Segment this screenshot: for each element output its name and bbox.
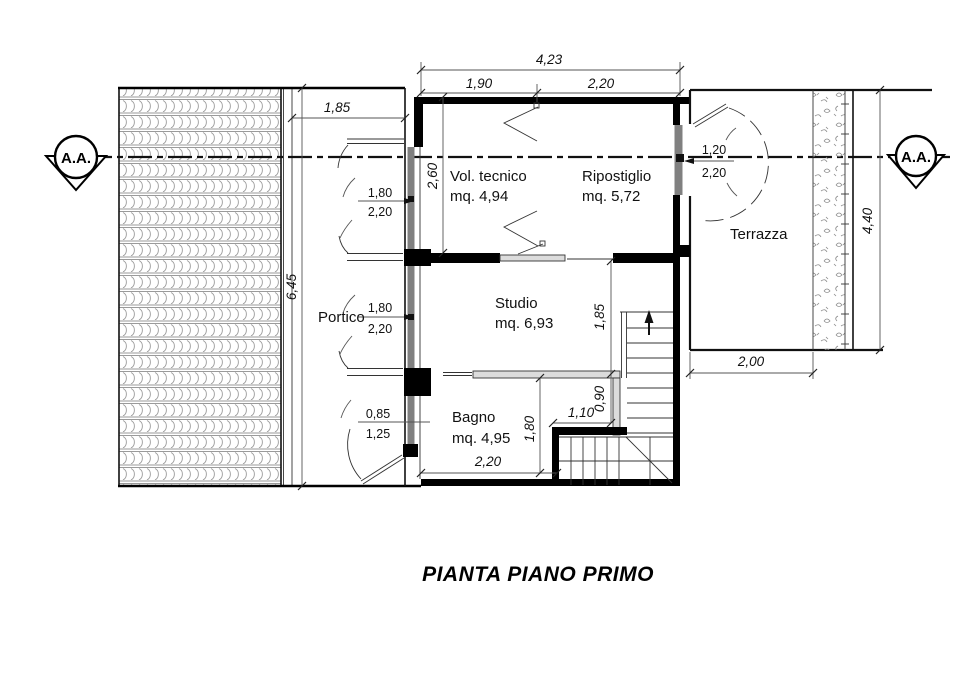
room-label-ripostiglio: Ripostiglio bbox=[582, 168, 651, 185]
window-height-label: 2,20 bbox=[368, 322, 392, 336]
dim-portico-length: 6,45 bbox=[284, 273, 299, 300]
room-label-bagno: Bagno bbox=[452, 409, 495, 426]
window-height-label: 2,20 bbox=[368, 205, 392, 219]
section-marker-right-label: A.A. bbox=[901, 149, 931, 166]
dim-portico-width: 1,85 bbox=[324, 100, 351, 115]
dim-total-width: 4,23 bbox=[536, 52, 563, 67]
room-label-terrazza: Terrazza bbox=[730, 226, 788, 243]
door-height-label: 2,20 bbox=[702, 166, 726, 180]
room-label-portico: Portico bbox=[318, 309, 365, 326]
wall-pier bbox=[403, 444, 418, 457]
window-width-label: 1,80 bbox=[368, 301, 392, 315]
dim-vol-tecnico-depth: 2,60 bbox=[425, 162, 440, 190]
vegetation-strip bbox=[813, 90, 845, 350]
section-marker-right: A.A. bbox=[888, 136, 944, 188]
dim-bagno-depth: 1,80 bbox=[522, 415, 537, 442]
label-window-bagno: 0,85 1,25 bbox=[341, 400, 430, 441]
dim-bagno-width: 2,20 bbox=[474, 454, 502, 469]
dim-stair-length: 1,85 bbox=[592, 303, 607, 330]
portico-railings bbox=[338, 139, 404, 376]
floor-plan: 4,23 1,90 2,20 1,85 6,45 2,60 1,85 0,90 … bbox=[0, 0, 970, 674]
terrazza-block bbox=[673, 90, 932, 350]
room-area-ripostiglio: mq. 5,72 bbox=[582, 188, 640, 205]
window-bagno bbox=[408, 396, 415, 444]
drawing-title: PIANTA PIANO PRIMO bbox=[422, 563, 654, 586]
room-label-studio: Studio bbox=[495, 295, 538, 312]
door-terrazza-swing bbox=[693, 104, 768, 221]
dim-vol-tecnico-width: 1,90 bbox=[466, 76, 493, 91]
room-area-studio: mq. 6,93 bbox=[495, 315, 553, 332]
dim-terrazza-width: 2,00 bbox=[737, 354, 765, 369]
room-area-bagno: mq. 4,95 bbox=[452, 430, 510, 447]
dim-ripostiglio-width: 2,20 bbox=[587, 76, 615, 91]
interior-walls bbox=[421, 241, 680, 486]
door-width-label: 1,20 bbox=[702, 143, 726, 157]
floor-plan-canvas: 4,23 1,90 2,20 1,85 6,45 2,60 1,85 0,90 … bbox=[0, 0, 970, 674]
room-label-vol-tecnico: Vol. tecnico bbox=[450, 168, 527, 185]
label-door-terrazza: 1,20 2,20 bbox=[684, 128, 737, 196]
window-height-label: 1,25 bbox=[366, 427, 390, 441]
window-width-label: 0,85 bbox=[366, 407, 390, 421]
section-marker-left: A.A. bbox=[46, 136, 106, 190]
dim-terrazza-length: 4,40 bbox=[860, 207, 875, 234]
roof-tiles-hatch bbox=[119, 88, 281, 486]
stair-direction-arrow bbox=[645, 310, 654, 335]
wall-pier bbox=[404, 368, 431, 396]
dim-stair-width: 0,90 bbox=[592, 385, 607, 412]
room-area-vol-tecnico: mq. 4,94 bbox=[450, 188, 508, 205]
window-width-label: 1,80 bbox=[368, 186, 392, 200]
dim-stair-landing: 1,10 bbox=[568, 405, 595, 420]
section-marker-left-label: A.A. bbox=[61, 150, 91, 167]
label-window-portico-upper: 1,80 2,20 bbox=[340, 178, 414, 238]
